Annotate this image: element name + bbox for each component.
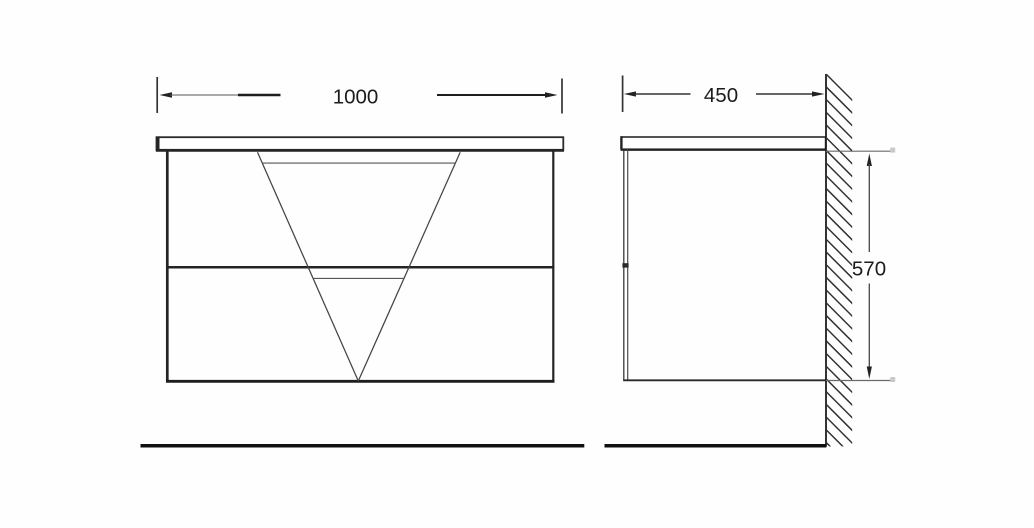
svg-text:1000: 1000 xyxy=(333,86,379,109)
svg-text:570: 570 xyxy=(852,257,886,280)
svg-text:450: 450 xyxy=(704,84,738,107)
